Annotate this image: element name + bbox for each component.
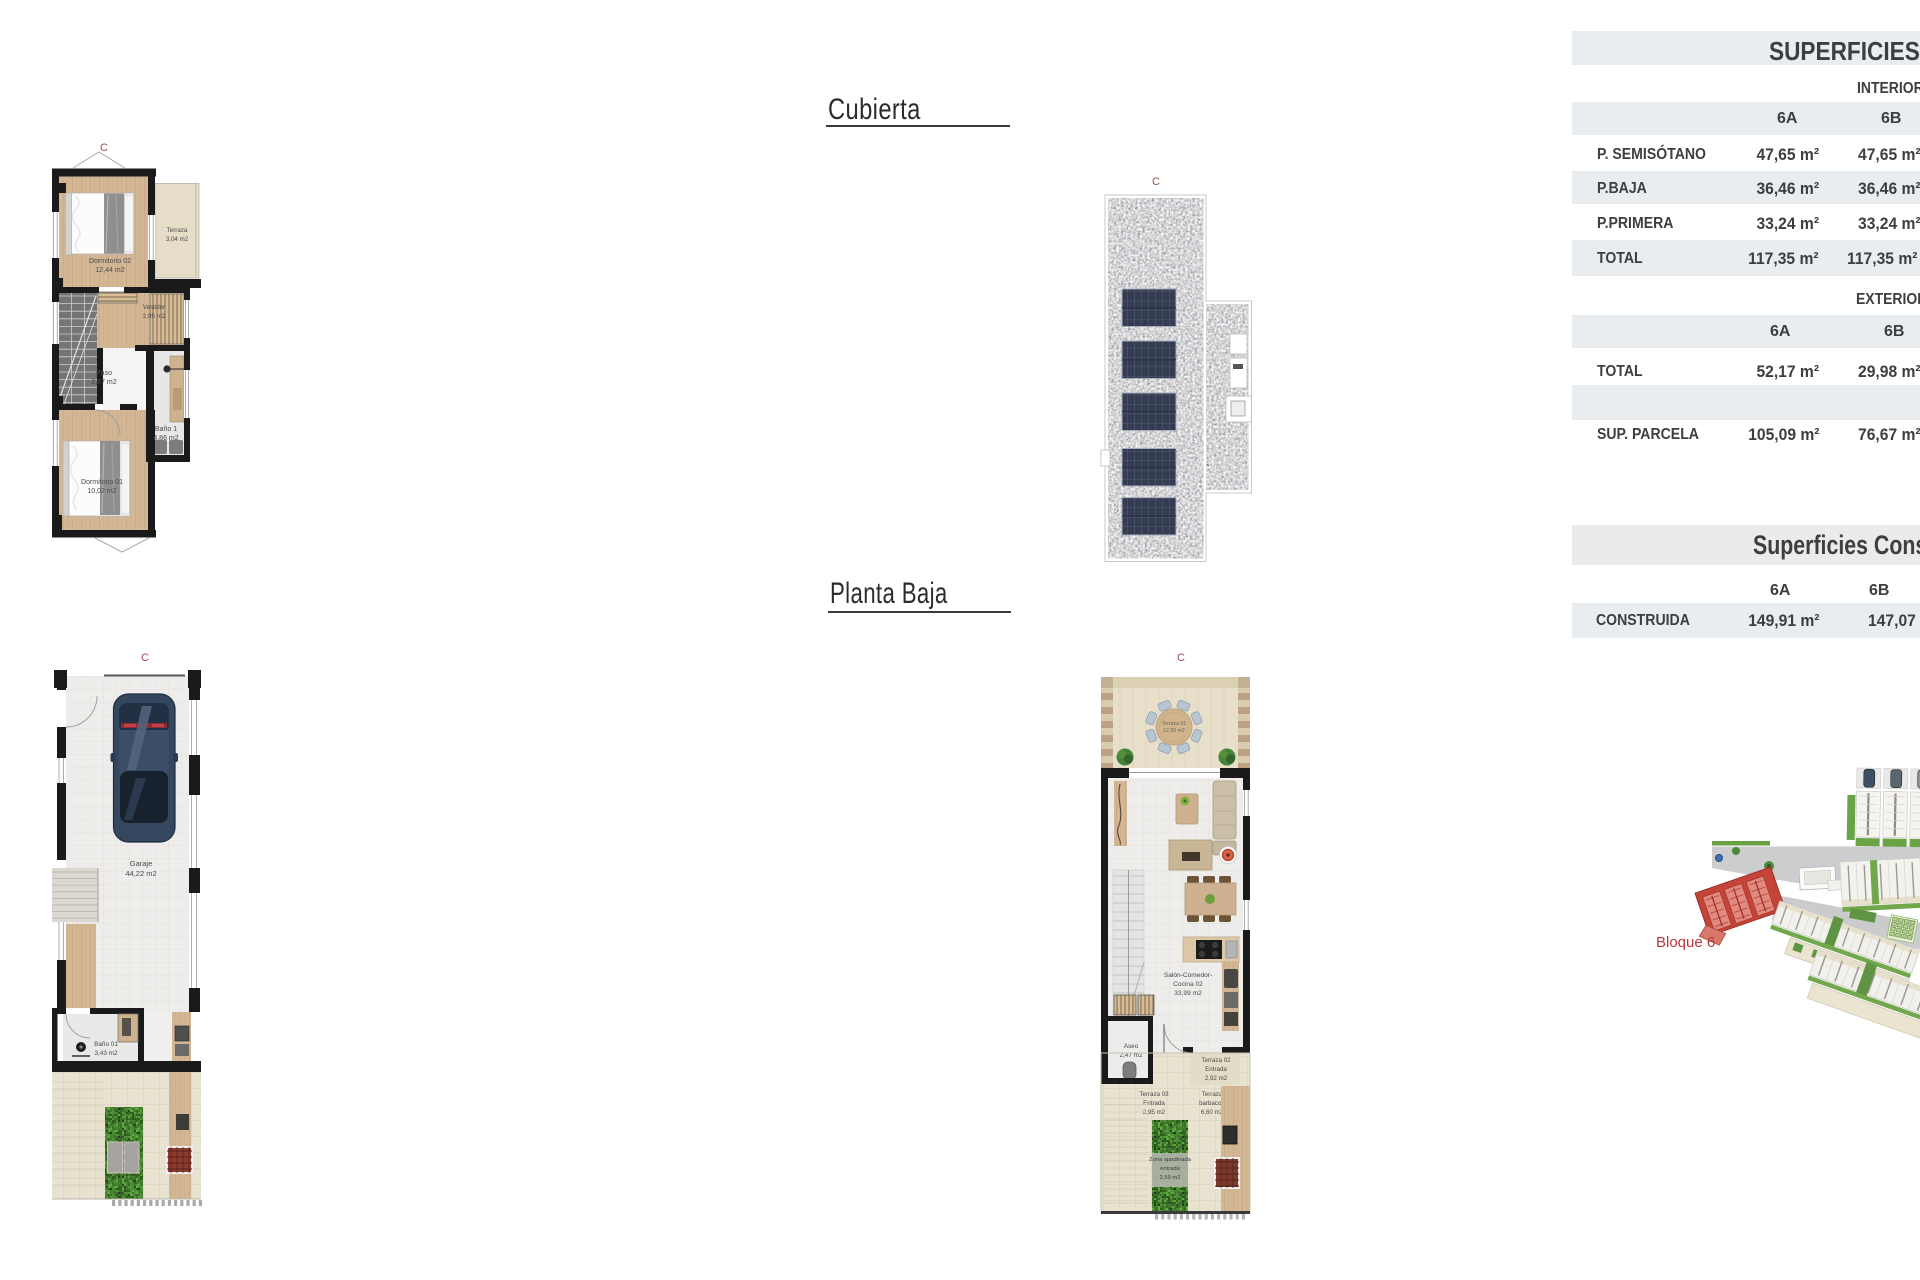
svg-text:Terraza: Terraza (1202, 1091, 1223, 1098)
svg-text:Terraza 02: Terraza 02 (1201, 1057, 1231, 1064)
svg-text:Vestidor: Vestidor (143, 304, 165, 311)
svg-text:Terraza: Terraza (167, 227, 188, 234)
svg-text:44,22 m2: 44,22 m2 (125, 869, 156, 878)
svg-text:2,95 m2: 2,95 m2 (143, 313, 166, 320)
svg-text:Bloque 6: Bloque 6 (1656, 934, 1715, 951)
svg-text:Zona ajardinada: Zona ajardinada (1149, 1157, 1192, 1163)
svg-text:Salón-Comedor-: Salón-Comedor- (1164, 972, 1212, 979)
svg-text:Garaje: Garaje (130, 859, 153, 868)
svg-text:6,60 m2: 6,60 m2 (1201, 1109, 1224, 1116)
svg-text:3,04 m2: 3,04 m2 (166, 236, 189, 243)
svg-text:Terraza 01: Terraza 01 (1162, 721, 1187, 727)
svg-text:Cocina 02: Cocina 02 (1173, 981, 1203, 988)
svg-text:C: C (1152, 176, 1160, 188)
svg-text:4,86 m2: 4,86 m2 (153, 435, 178, 442)
svg-text:3,43 m2: 3,43 m2 (94, 1050, 118, 1057)
svg-text:Entrada: Entrada (1205, 1066, 1227, 1073)
svg-text:10,02 m2: 10,02 m2 (87, 488, 116, 495)
svg-text:Dormitorio 02: Dormitorio 02 (89, 258, 131, 265)
svg-text:Entrada: Entrada (1143, 1100, 1165, 1107)
svg-text:2,92 m2: 2,92 m2 (1205, 1075, 1228, 1082)
svg-text:C: C (100, 142, 108, 154)
svg-text:2,87 m2: 2,87 m2 (91, 379, 116, 386)
svg-text:C: C (1177, 652, 1185, 664)
svg-text:C: C (141, 652, 149, 664)
svg-text:Aseo: Aseo (1124, 1043, 1139, 1050)
svg-text:12,44 m2: 12,44 m2 (95, 267, 124, 274)
svg-text:12,50 m2: 12,50 m2 (1163, 728, 1185, 734)
svg-text:33,99 m2: 33,99 m2 (1174, 990, 1202, 997)
svg-text:2,95 m2: 2,95 m2 (1143, 1109, 1166, 1116)
svg-text:entrada: entrada (1160, 1166, 1180, 1172)
svg-text:Paso: Paso (96, 370, 112, 377)
svg-text:Terraza 03: Terraza 03 (1139, 1091, 1169, 1098)
svg-text:Baño 01: Baño 01 (94, 1041, 118, 1048)
svg-text:Dormitorio 01: Dormitorio 01 (81, 479, 123, 486)
svg-text:Baño 1: Baño 1 (155, 426, 177, 433)
svg-text:2,59 m2: 2,59 m2 (1160, 1175, 1181, 1181)
